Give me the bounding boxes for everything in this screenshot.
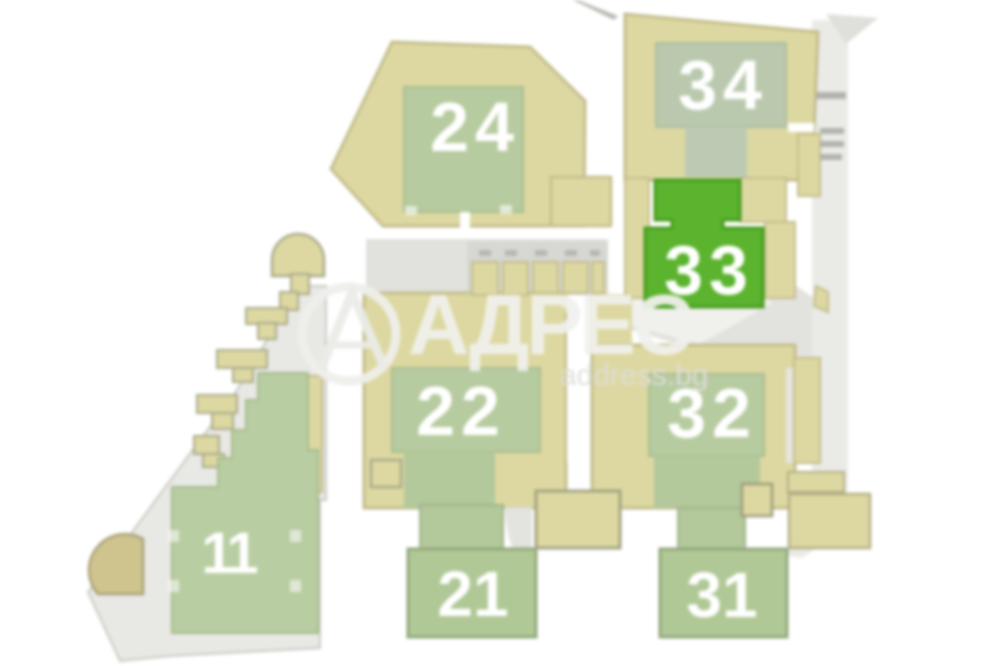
svg-text:address.bg: address.bg bbox=[560, 359, 708, 392]
svg-text:22: 22 bbox=[416, 372, 506, 450]
svg-text:11: 11 bbox=[201, 521, 257, 586]
svg-text:21: 21 bbox=[437, 558, 508, 630]
svg-text:24: 24 bbox=[430, 88, 520, 166]
svg-text:34: 34 bbox=[678, 46, 768, 124]
svg-text:31: 31 bbox=[686, 559, 757, 631]
